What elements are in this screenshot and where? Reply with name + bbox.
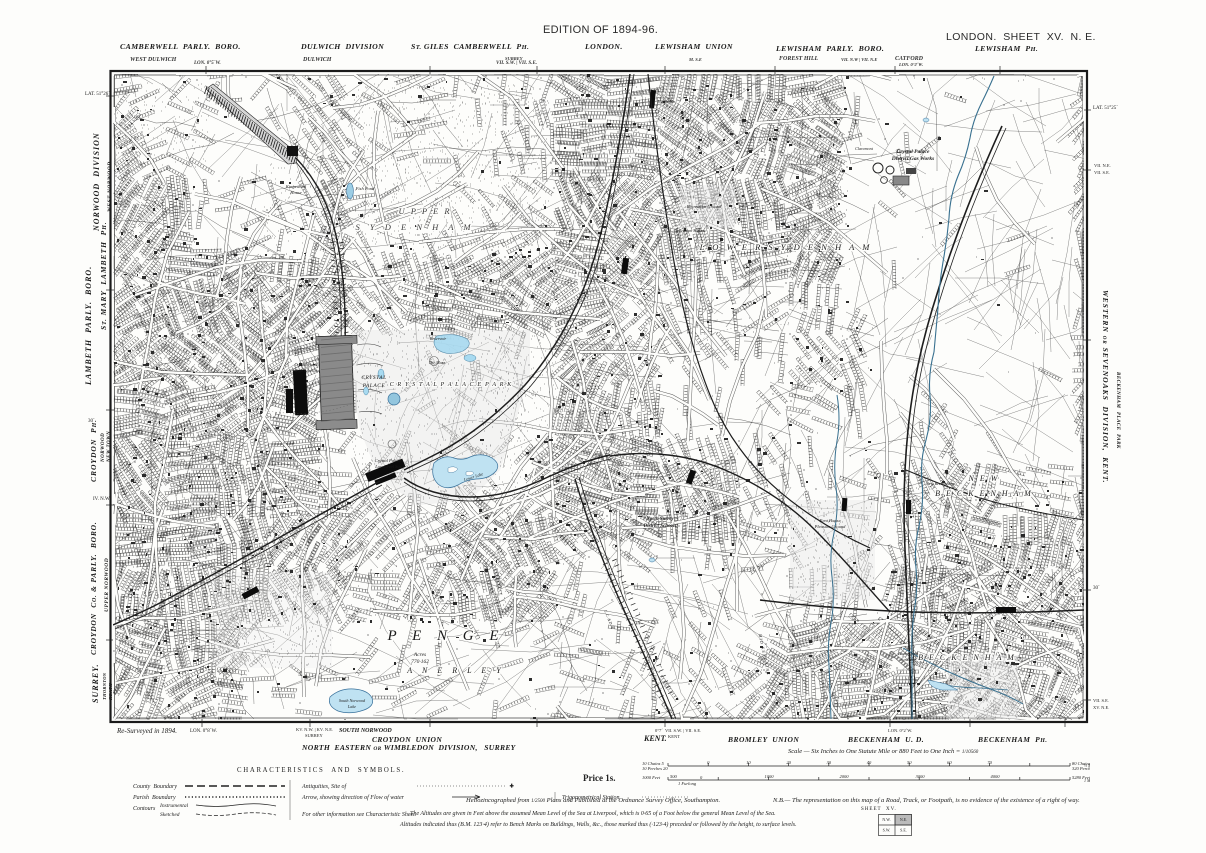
svg-text:South Norwood: South Norwood bbox=[339, 698, 366, 703]
svg-text:B E C K E N H A M: B E C K E N H A M bbox=[918, 653, 1016, 662]
svg-text:Crystal Palace: Crystal Palace bbox=[897, 149, 930, 155]
svg-text:Pleasure Ground: Pleasure Ground bbox=[814, 524, 847, 529]
svg-text:B E C K E N H A M: B E C K E N H A M bbox=[935, 489, 1033, 498]
svg-text:Crystal Palace: Crystal Palace bbox=[294, 362, 319, 367]
svg-text:Junction: Junction bbox=[900, 657, 916, 662]
svg-text:Low Level Sta: Low Level Sta bbox=[374, 464, 401, 469]
svg-text:Lake: Lake bbox=[347, 704, 356, 709]
svg-text:Sydenham Station: Sydenham Station bbox=[675, 228, 705, 233]
svg-text:Fish Pond: Fish Pond bbox=[355, 186, 375, 191]
svg-text:Crystal Palace: Crystal Palace bbox=[375, 458, 402, 463]
svg-text:High Level Sta: High Level Sta bbox=[294, 368, 320, 373]
svg-text:New Beckenham: New Beckenham bbox=[925, 481, 954, 486]
svg-text:House: House bbox=[289, 190, 302, 195]
svg-text:S Y D E N H A M: S Y D E N H A M bbox=[356, 222, 475, 232]
svg-text:CRYSTAL: CRYSTAL bbox=[361, 375, 386, 381]
svg-text:Kingswood: Kingswood bbox=[285, 184, 307, 189]
svg-text:P E N G E: P E N G E bbox=[386, 628, 504, 644]
svg-text:A N E R L E Y: A N E R L E Y bbox=[406, 666, 505, 675]
svg-text:C R Y S T A L P A L A C E: C R Y S T A L P A L A C E P A R K bbox=[390, 381, 513, 388]
svg-text:U P P E R: U P P E R bbox=[398, 206, 451, 216]
svg-text:Claremont: Claremont bbox=[855, 146, 874, 151]
svg-text:L O W E R S Y D E N H A M: L O W E R S Y D E N H A M bbox=[699, 242, 873, 252]
svg-text:PALACE: PALACE bbox=[362, 383, 386, 389]
svg-text:770·162: 770·162 bbox=[411, 659, 429, 665]
svg-text:Kent House: Kent House bbox=[818, 518, 840, 523]
svg-text:The Maze: The Maze bbox=[429, 360, 446, 365]
svg-text:Recreation Ground: Recreation Ground bbox=[686, 204, 722, 209]
svg-text:Reservoir: Reservoir bbox=[429, 336, 447, 341]
svg-text:Beckenham: Beckenham bbox=[898, 651, 918, 656]
svg-text:District Schools: District Schools bbox=[643, 524, 677, 529]
svg-text:Acres: Acres bbox=[413, 652, 426, 658]
svg-text:N E W: N E W bbox=[968, 474, 1000, 483]
svg-text:L.C.&D.R: L.C.&D.R bbox=[603, 608, 616, 630]
svg-text:District Gas Works: District Gas Works bbox=[891, 156, 935, 162]
svg-text:North Surrey: North Surrey bbox=[645, 517, 674, 522]
svg-text:Manor Ho: Manor Ho bbox=[656, 99, 675, 104]
